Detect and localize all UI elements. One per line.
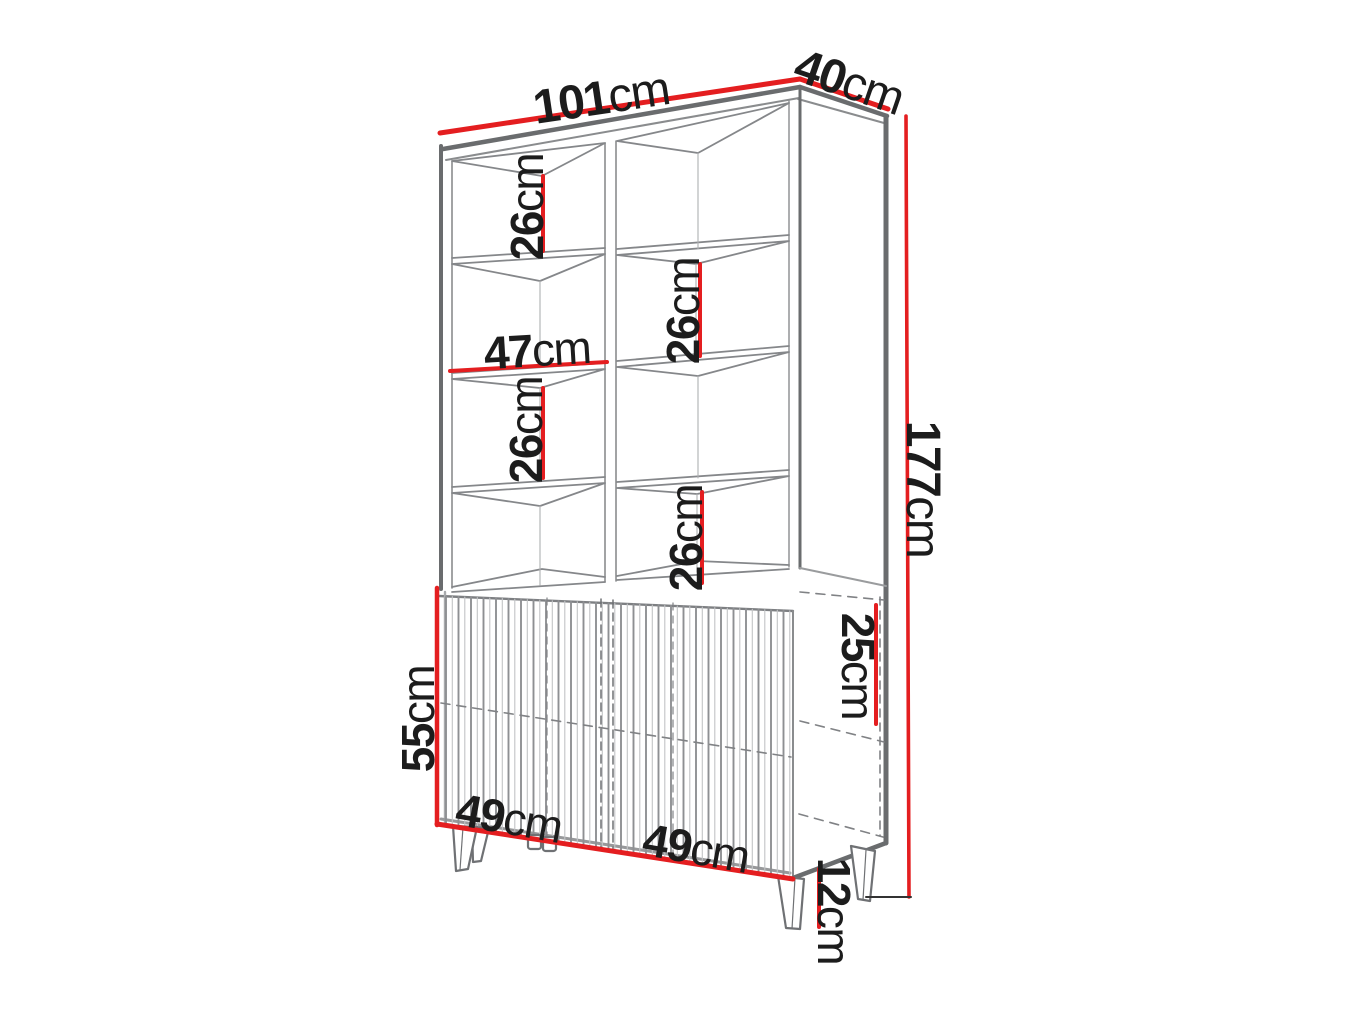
hidden-top-side [800,592,884,600]
dim-label-right-upper-shelf: 26cm [657,258,709,365]
unit-bottom-side-edge [800,568,886,586]
dim-label-left-upper-shelf: 26cm [501,154,553,261]
dim-label-right-lower-shelf: 26cm [660,485,712,592]
dim-label-total-height: 177cm [897,421,950,558]
dim-label-right-door-width: 49cm [639,813,753,883]
dim-label-inner-compartment: 25cm [832,613,884,720]
dim-label-leg-height: 12cm [808,858,860,965]
hidden-bottom-side [799,814,883,837]
furniture-dimension-diagram: 101cm 40cm 177cm 26cm 26cm 26cm 26cm 47c… [0,0,1348,1011]
front-right-leg [778,876,804,929]
hidden-shelf-front [441,703,791,757]
hidden-shelf-side [800,721,884,742]
dim-label-base-height: 55cm [392,666,444,773]
dim-label-left-lower-shelf: 26cm [500,377,552,484]
dimension-labels: 101cm 40cm 177cm 26cm 26cm 26cm 26cm 47c… [392,39,950,964]
dim-label-shelf-width: 47cm [482,321,591,379]
diagram-canvas: 101cm 40cm 177cm 26cm 26cm 26cm 26cm 47c… [0,0,1348,1011]
shelf-line [452,569,605,592]
